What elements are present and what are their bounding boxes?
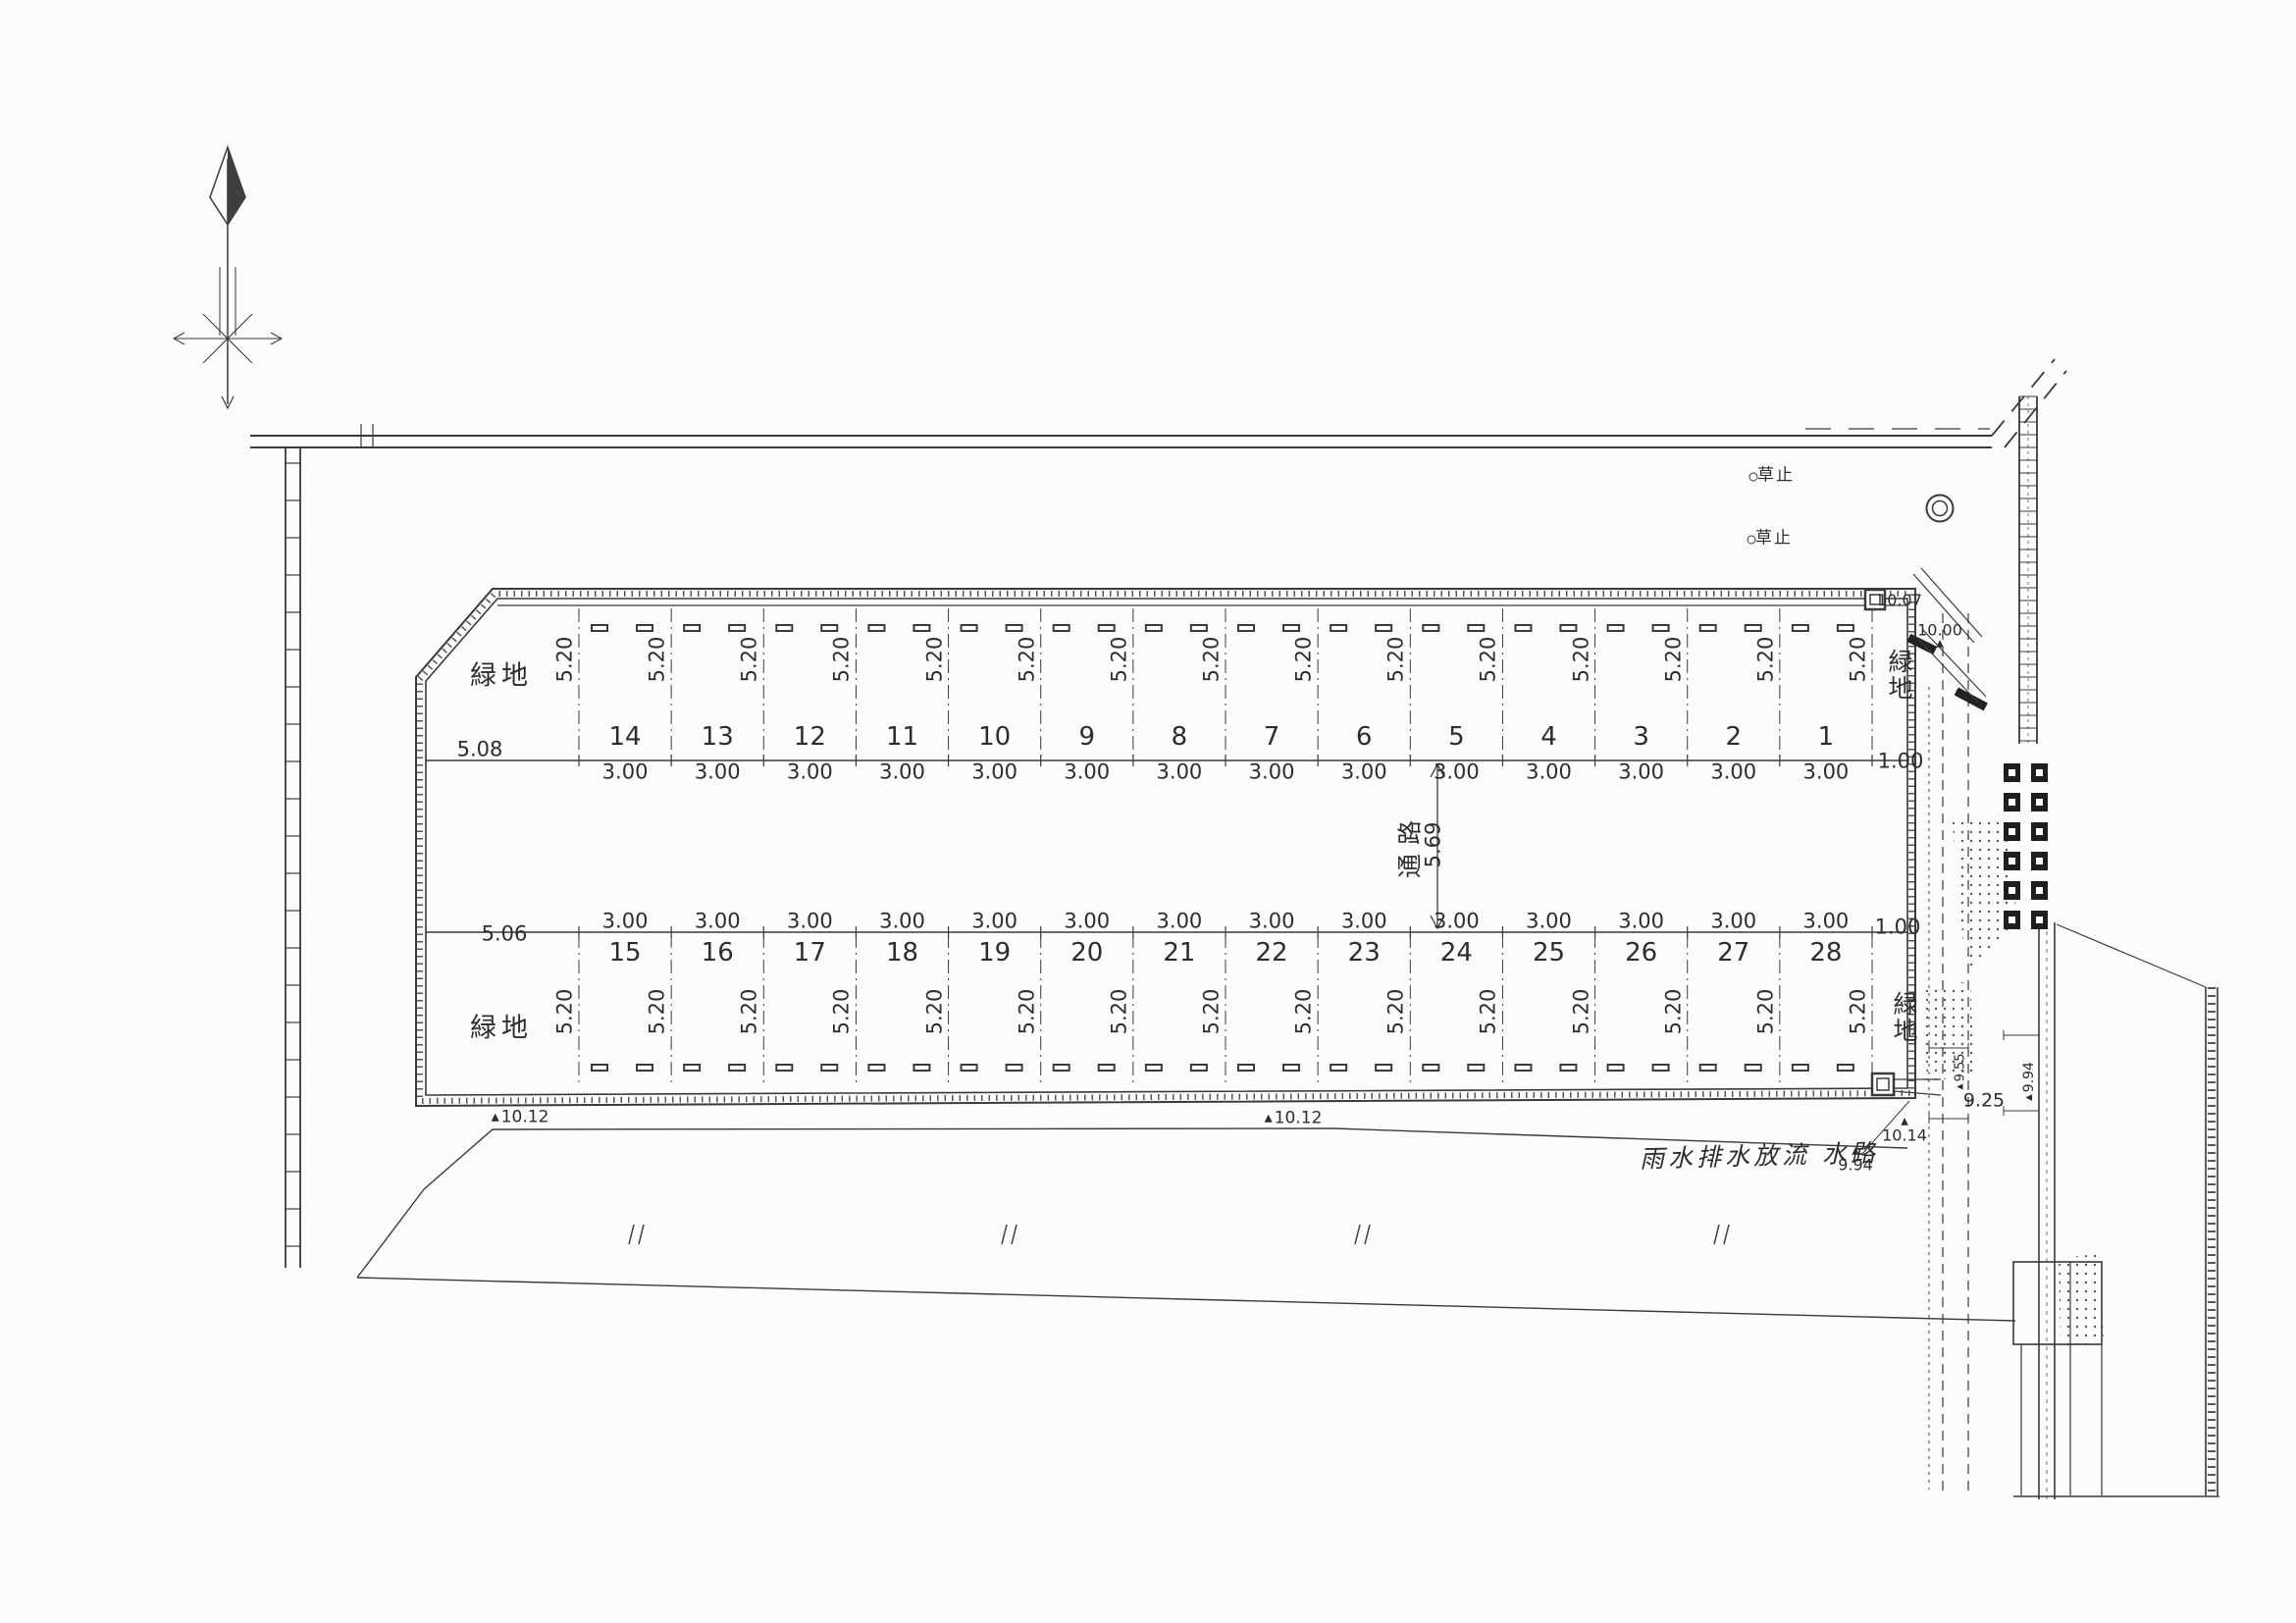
stall-width-dim: 3.00 — [787, 912, 833, 932]
stall-number: 16 — [702, 940, 734, 966]
stall-width-dim: 3.00 — [1157, 912, 1203, 932]
stall-number: 12 — [794, 724, 826, 750]
stall-width-dim: 3.00 — [1434, 912, 1480, 932]
stall-depth-dim: 5.20 — [1109, 989, 1129, 1035]
stall-depth-dim: 5.20 — [1017, 637, 1037, 683]
stall-number: 7 — [1264, 724, 1280, 750]
stall-depth-dim: 5.20 — [1755, 989, 1776, 1035]
stall-number: 28 — [1809, 940, 1842, 966]
stall-number: 22 — [1256, 940, 1288, 966]
stall-width-dim: 3.00 — [971, 912, 1018, 932]
stall-depth-dim: 5.20 — [1294, 989, 1315, 1035]
stall-number: 11 — [886, 724, 918, 750]
stall-number: 21 — [1163, 940, 1195, 966]
parking-site-plan: 緑地 緑地 緑地 緑地 5.08 5.06 1.00 1.00 通路 5.69 … — [0, 0, 2296, 1623]
stall-width-dim: 3.00 — [1803, 762, 1850, 783]
green-width-dim-top: 5.08 — [457, 740, 503, 760]
green-width-dim-bottom: 5.06 — [482, 924, 528, 945]
elevation-value: 10.14 — [1882, 1127, 1927, 1143]
stall-depth-dim: 5.20 — [1017, 989, 1037, 1035]
stall-depth-dim: 5.20 — [1386, 637, 1407, 683]
label-layer: 緑地 緑地 緑地 緑地 5.08 5.06 1.00 1.00 通路 5.69 … — [0, 0, 2296, 1623]
stall-number: 24 — [1440, 940, 1473, 966]
stall-number: 18 — [886, 940, 918, 966]
green-right-width-dim-bottom: 1.00 — [1875, 917, 1921, 938]
stall-depth-dim: 5.20 — [924, 989, 945, 1035]
stall-number: 27 — [1717, 940, 1749, 966]
stall-depth-dim: 5.20 — [1755, 637, 1776, 683]
stall-number: 5 — [1448, 724, 1465, 750]
elevation-top-right-corner: 10.07 — [1877, 593, 1922, 608]
stall-number: 3 — [1633, 724, 1649, 750]
green-area-label-bottom-left: 緑地 — [470, 1016, 533, 1042]
elevation-outlet-top: ▲ 10.14 — [1882, 1118, 1927, 1144]
stall-depth-dim: 5.20 — [924, 637, 945, 683]
stall-depth-dim: 5.20 — [740, 989, 760, 1035]
stall-width-dim: 3.00 — [695, 912, 741, 932]
stall-depth-dim: 5.20 — [1202, 989, 1223, 1035]
stall-depth-dim: 5.20 — [832, 989, 853, 1035]
stall-number: 9 — [1079, 724, 1096, 750]
stall-number: 23 — [1348, 940, 1381, 966]
stall-width-dim: 3.00 — [971, 762, 1018, 783]
stall-depth-dim: 5.20 — [648, 989, 668, 1035]
stall-depth-dim: 5.20 — [1571, 637, 1592, 683]
green-area-label-bottom-right: 緑地 — [1892, 991, 1920, 1044]
elevation-channel-side: ▲9.94 — [2022, 1062, 2036, 1101]
stall-depth-dim: 5.20 — [1663, 989, 1684, 1035]
stall-width-dim: 3.00 — [879, 912, 925, 932]
stall-width-dim: 3.00 — [1618, 762, 1664, 783]
elevation-triangle-icon: ▲ — [1265, 1113, 1273, 1125]
stall-number: 17 — [794, 940, 826, 966]
green-area-label-top-left: 緑地 — [470, 663, 533, 690]
stall-width-dim: 3.00 — [1341, 762, 1387, 783]
stall-number: 25 — [1533, 940, 1565, 966]
stall-width-dim: 3.00 — [1064, 912, 1110, 932]
elevation-value: 9.94 — [2021, 1062, 2037, 1092]
elevation-bottom-left: ▲10.12 — [492, 1110, 549, 1126]
elevation-triangle-icon: ▲ — [492, 1112, 499, 1124]
stall-width-dim: 3.00 — [787, 762, 833, 783]
elevation-channel: 9.25 — [1963, 1092, 2005, 1111]
stall-width-dim: 3.00 — [1526, 912, 1572, 932]
elevation-triangle-icon: ▲ — [1936, 640, 1944, 650]
stall-width-dim: 3.00 — [602, 762, 649, 783]
grass-stop-label-1: 草止 — [1757, 468, 1795, 485]
stall-number: 10 — [978, 724, 1011, 750]
stall-depth-dim: 5.20 — [555, 637, 576, 683]
stall-number: 6 — [1356, 724, 1373, 750]
stall-number: 15 — [609, 940, 642, 966]
stall-width-dim: 3.00 — [1710, 762, 1756, 783]
stall-width-dim: 3.00 — [1803, 912, 1850, 932]
stall-number: 4 — [1540, 724, 1557, 750]
stall-depth-dim: 5.20 — [1849, 989, 1869, 1035]
stall-width-dim: 3.00 — [1526, 762, 1572, 783]
stall-depth-dim: 5.20 — [1294, 637, 1315, 683]
stall-number: 2 — [1726, 724, 1743, 750]
elevation-value: 9.55 — [1954, 1053, 1968, 1081]
stall-depth-dim: 5.20 — [1571, 989, 1592, 1035]
stall-width-dim: 3.00 — [1710, 912, 1756, 932]
elevation-channel-small: ▲9.55 — [1955, 1053, 1967, 1089]
green-right-width-dim-top: 1.00 — [1878, 752, 1924, 772]
stall-number: 20 — [1070, 940, 1103, 966]
aisle-label: 通路 — [1398, 811, 1423, 878]
aisle-width-dim: 5.69 — [1424, 822, 1444, 868]
stall-depth-dim: 5.20 — [1386, 989, 1407, 1035]
stall-depth-dim: 5.20 — [1479, 637, 1499, 683]
elevation-triangle-icon: ▲ — [2024, 1094, 2034, 1101]
stall-width-dim: 3.00 — [1064, 762, 1110, 783]
grass-stop-label-2: 草止 — [1755, 531, 1793, 548]
stall-depth-dim: 5.20 — [1479, 989, 1499, 1035]
elevation-bottom-mid: ▲10.12 — [1265, 1111, 1323, 1127]
elevation-value: 10.12 — [501, 1108, 549, 1127]
stall-number: 26 — [1625, 940, 1657, 966]
elevation-slope: 10.00 ▲ — [1917, 623, 1962, 650]
stall-depth-dim: 5.20 — [832, 637, 853, 683]
stall-width-dim: 3.00 — [879, 762, 925, 783]
drainage-channel-note: 雨水排水放流 水路 — [1640, 1140, 1880, 1171]
stall-depth-dim: 5.20 — [648, 637, 668, 683]
stall-width-dim: 3.00 — [602, 912, 649, 932]
stall-depth-dim: 5.20 — [1202, 637, 1223, 683]
green-area-label-top-right: 緑地 — [1887, 649, 1915, 702]
stall-depth-dim: 5.20 — [740, 637, 760, 683]
stall-depth-dim: 5.20 — [1109, 637, 1129, 683]
stall-width-dim: 3.00 — [1341, 912, 1387, 932]
stall-number: 1 — [1818, 724, 1835, 750]
stall-depth-dim: 5.20 — [555, 989, 576, 1035]
stall-number: 14 — [609, 724, 642, 750]
stall-depth-dim: 5.20 — [1663, 637, 1684, 683]
stall-width-dim: 3.00 — [1618, 912, 1664, 932]
stall-width-dim: 3.00 — [695, 762, 741, 783]
elevation-value: 10.12 — [1275, 1109, 1323, 1128]
stall-number: 8 — [1172, 724, 1188, 750]
elevation-triangle-icon: ▲ — [1956, 1083, 1964, 1089]
stall-width-dim: 3.00 — [1249, 912, 1295, 932]
stall-width-dim: 3.00 — [1249, 762, 1295, 783]
stall-number: 13 — [702, 724, 734, 750]
elevation-value: 10.00 — [1917, 623, 1962, 639]
stall-width-dim: 3.00 — [1434, 762, 1480, 783]
stall-number: 19 — [978, 940, 1011, 966]
stall-depth-dim: 5.20 — [1849, 637, 1869, 683]
stall-width-dim: 3.00 — [1157, 762, 1203, 783]
